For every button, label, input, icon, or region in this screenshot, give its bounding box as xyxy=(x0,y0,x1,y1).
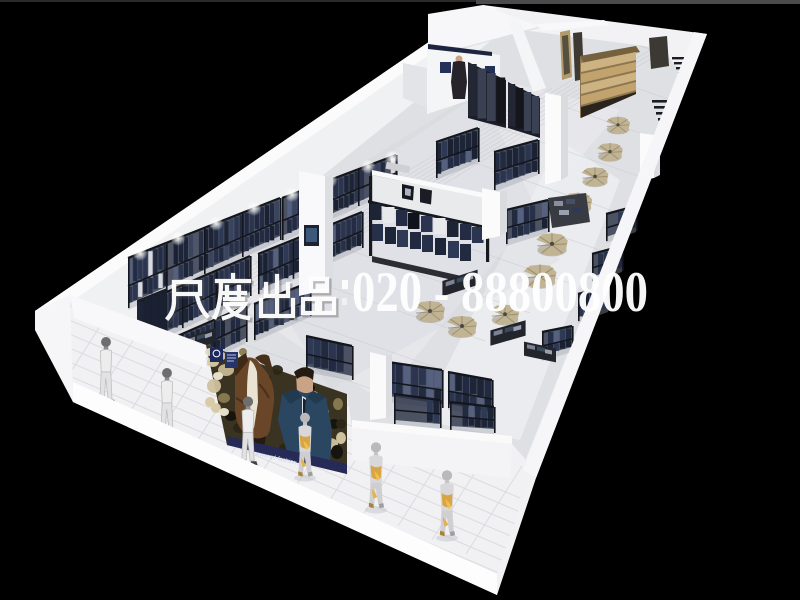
svg-text:020 - 88800800: 020 - 88800800 xyxy=(352,262,648,324)
